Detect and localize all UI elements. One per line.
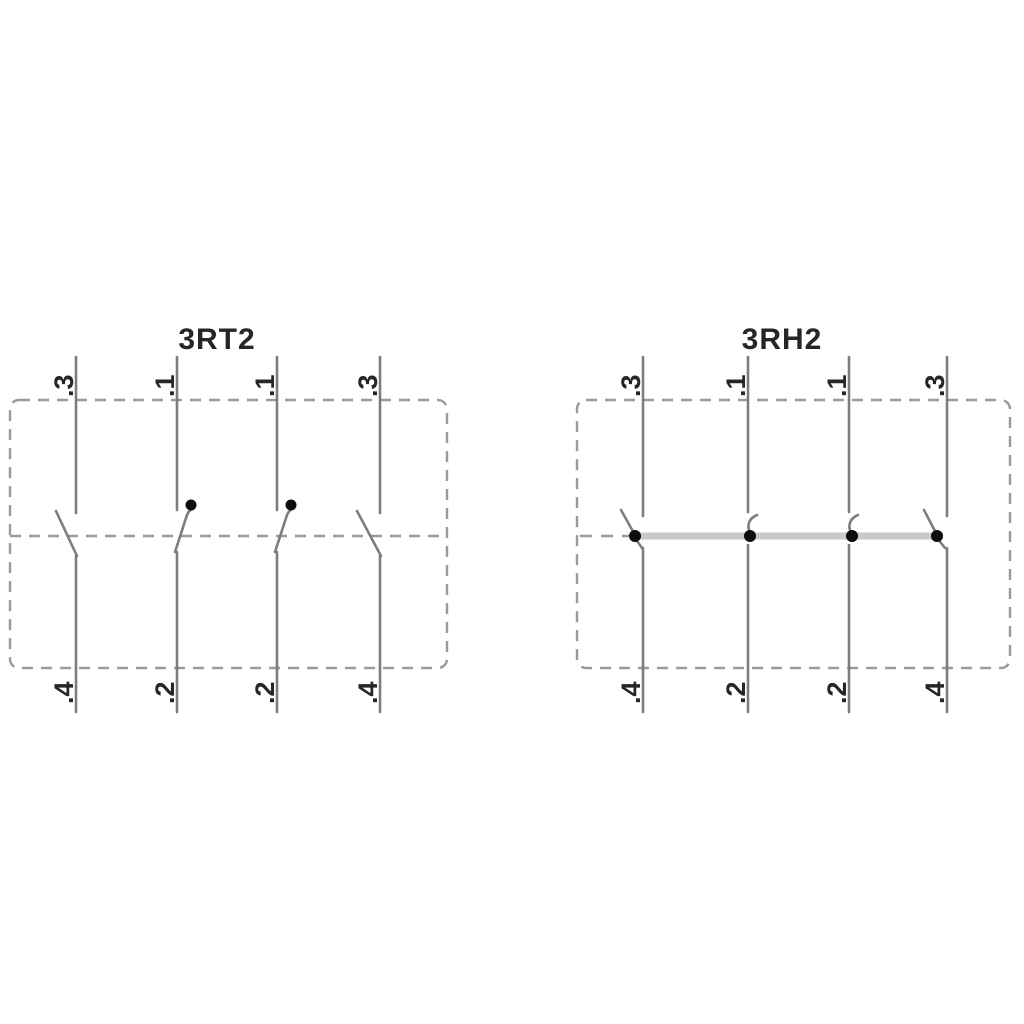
terminal-labels-3rt2: .3 .1 .1 .3 .4 .2 .2 .4 xyxy=(49,374,383,704)
pole1-contact-blade xyxy=(56,511,77,556)
terminal-label-bottom: .4 xyxy=(49,681,79,704)
terminal-label-bottom: .2 xyxy=(250,681,280,704)
pole1-linkage-dot xyxy=(629,530,641,542)
pole3-contact-dot xyxy=(286,500,297,511)
pole3-linkage-dot xyxy=(846,530,858,542)
terminal-label-top: .3 xyxy=(353,374,383,397)
terminal-label-top: .1 xyxy=(250,374,280,397)
terminal-label-top: .1 xyxy=(150,374,180,397)
title-group-3rh2: 3RH2 xyxy=(742,323,823,356)
diagram-title-3rh2: 3RH2 xyxy=(742,323,823,356)
pole4-linkage-dot xyxy=(931,530,943,542)
contactor-schematic-canvas: 3RT2 .3 .1 .1 .3 .4 .2 .2 .4 xyxy=(0,0,1024,1024)
terminal-label-top: .3 xyxy=(616,374,646,397)
pole2-contact-blade xyxy=(175,508,194,552)
pole3-contact-blade xyxy=(275,508,294,552)
terminal-label-bottom: .2 xyxy=(822,681,852,704)
schematic-page: 3RT2 .3 .1 .1 .3 .4 .2 .2 .4 xyxy=(0,0,1024,1024)
title-group-3rt2: 3RT2 xyxy=(178,323,255,356)
terminal-label-top: .1 xyxy=(721,374,751,397)
terminal-label-bottom: .4 xyxy=(353,681,383,704)
diagram-3rt2: 3RT2 .3 .1 .1 .3 .4 .2 .2 .4 xyxy=(10,323,447,712)
diagram-title-3rt2: 3RT2 xyxy=(178,323,255,356)
diagram-3rh2: 3RH2 .3 .1 .1 .3 .4 .2 .2 .4 xyxy=(577,323,1010,712)
pole2-contact-dot xyxy=(186,500,197,511)
terminal-label-bottom: .4 xyxy=(920,681,950,704)
pole2-linkage-dot xyxy=(744,530,756,542)
terminal-label-bottom: .2 xyxy=(721,681,751,704)
conductors-3rt2 xyxy=(56,357,381,712)
terminal-label-top: .3 xyxy=(49,374,79,397)
terminal-label-bottom: .2 xyxy=(150,681,180,704)
contact-dots-3rt2 xyxy=(186,500,297,511)
terminal-label-bottom: .4 xyxy=(616,681,646,704)
terminal-label-top: .1 xyxy=(822,374,852,397)
pole4-contact-blade xyxy=(357,511,381,556)
terminal-label-top: .3 xyxy=(920,374,950,397)
